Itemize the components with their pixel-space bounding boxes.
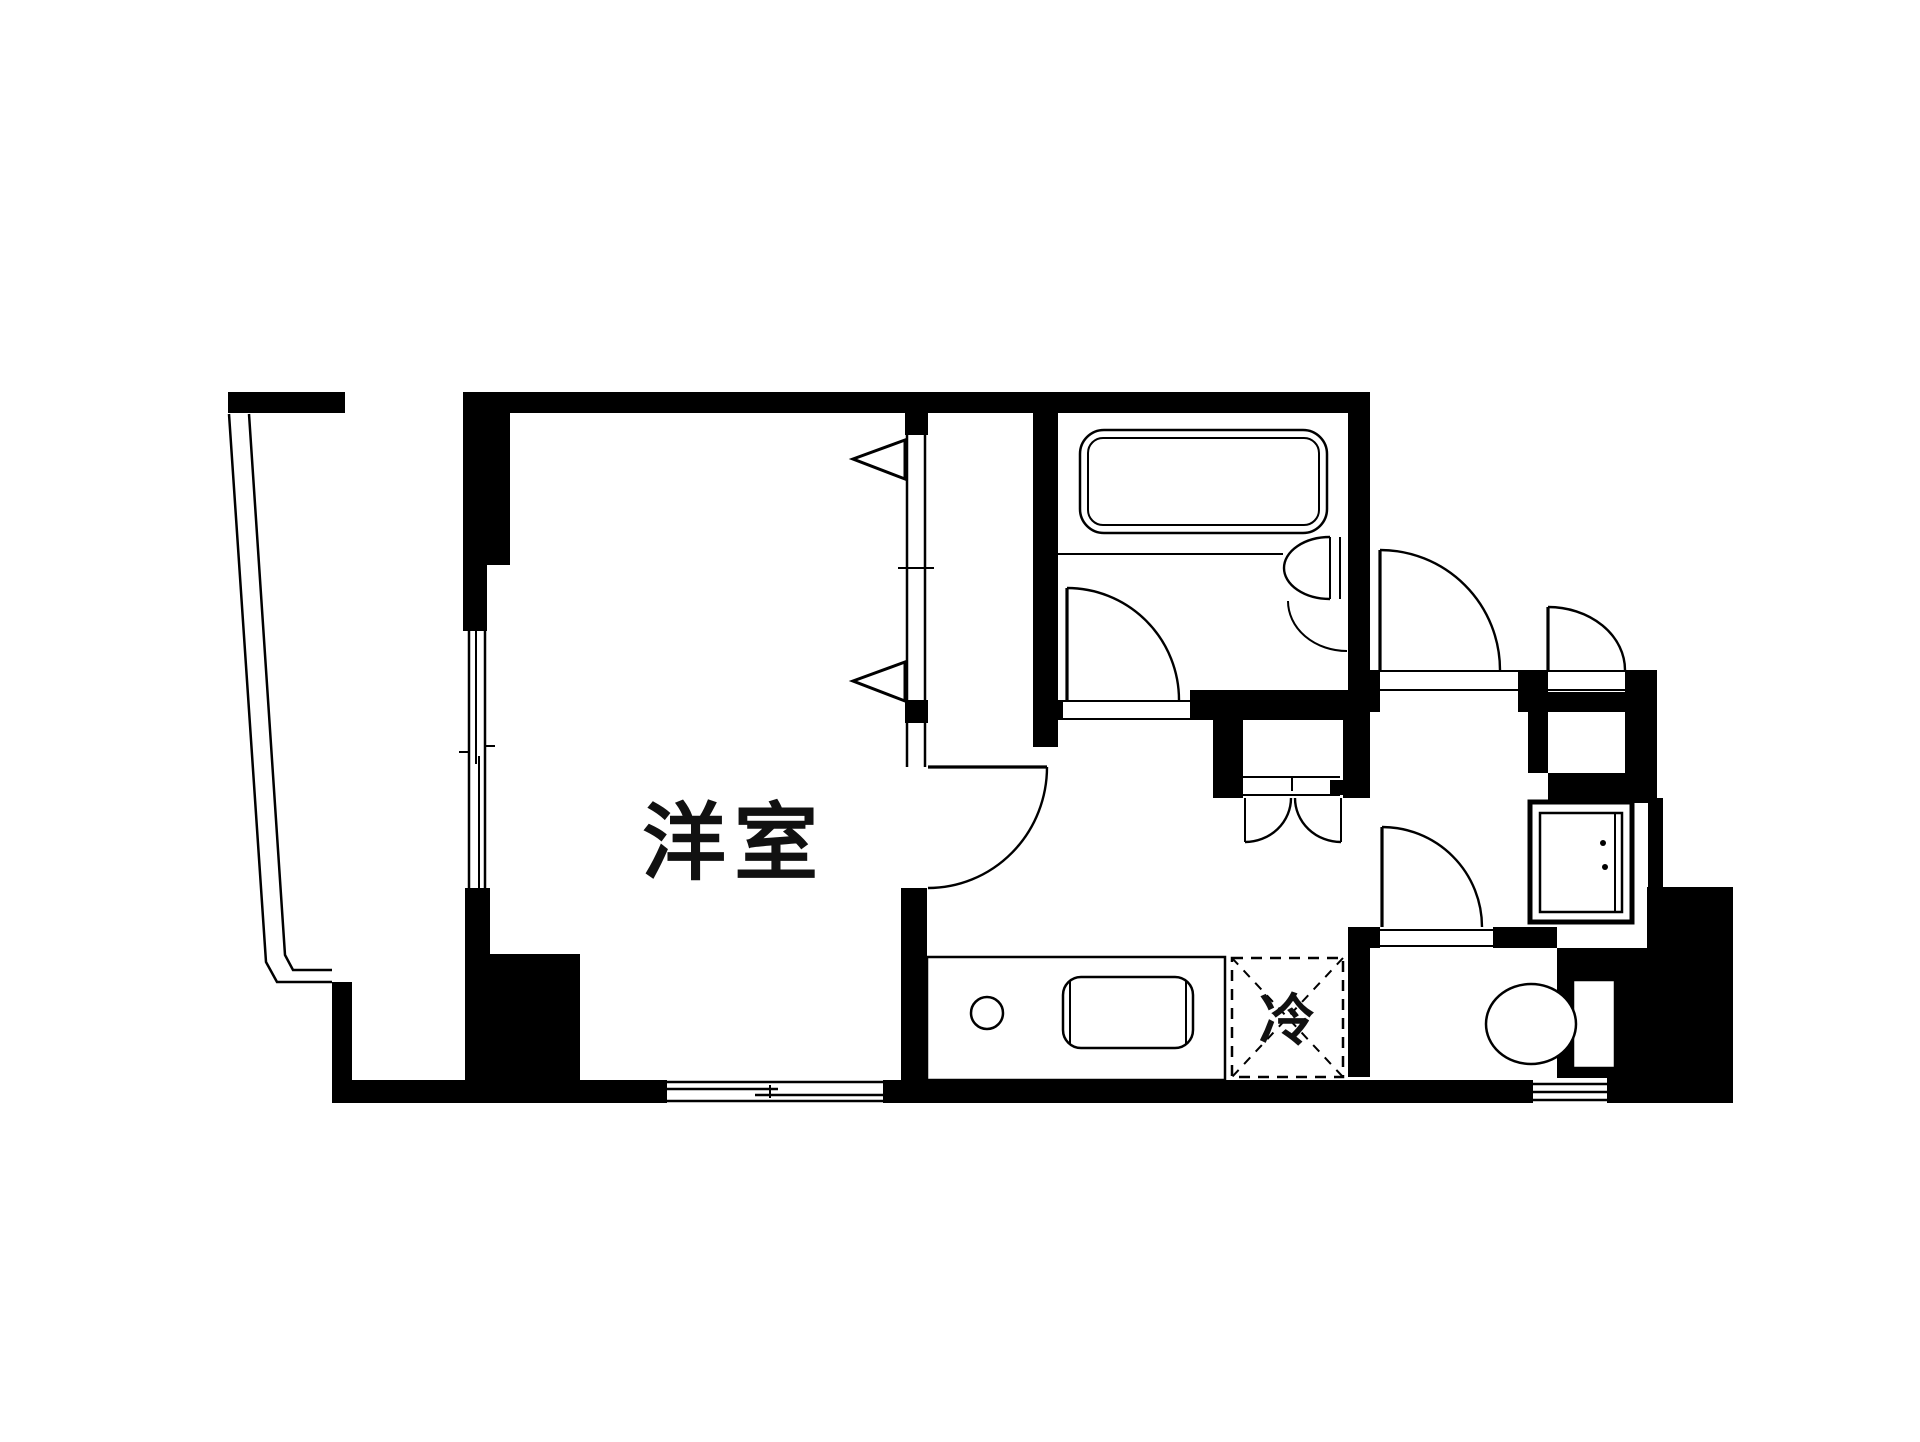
wall-right-thin [1648,798,1663,887]
wall-closet-left-bar [1213,720,1243,798]
bathtub [1080,430,1327,533]
floor-plan-svg: 冷 [0,0,1920,1442]
meter-box-door [1548,607,1625,690]
wall-neck [465,888,490,956]
wall-washroom-nub [1033,700,1063,720]
floor-plan-page: { "document": { "type": "japanese-apartm… [0,0,1920,1442]
refrigerator-space: 冷 [1232,958,1343,1077]
toilet-door [1380,827,1493,947]
wall-closet-band [1190,690,1370,720]
wall-sw-block [465,954,580,1082]
kitchen-sink [1063,977,1193,1048]
entrance [1380,550,1632,922]
slide-arrow-upper [853,440,905,479]
closet-door-left [1245,798,1291,842]
wall-meterbox-bottom [1548,773,1657,803]
bathtub-inner [1088,438,1319,525]
toilet-tank [1573,980,1615,1068]
refrigerator-label: 冷 [1259,989,1315,1054]
balcony [229,414,332,982]
wall-wc-left [1348,948,1370,1077]
wall-top-left [228,392,345,413]
washroom-door [1063,588,1190,720]
bathroom [1058,430,1347,720]
stove-burner [971,997,1003,1029]
hall-closet [1243,777,1341,842]
wall-bottom-left [332,1080,667,1103]
washbasin [1284,537,1347,651]
top-window [345,394,463,411]
wall-wc-band-left [1348,927,1380,948]
washing-machine-pan [1530,802,1632,922]
entrance-door [1380,550,1518,690]
wall-nw-narrow [463,565,487,631]
wall-entrance-left-chunk [1348,670,1380,712]
wall-nw-pillar [463,413,510,565]
wall-bath-right-foot [1330,780,1350,795]
entrance-step-grille [1533,1078,1607,1103]
windows [345,394,883,1103]
wall-partition-stub-top [905,413,928,435]
slide-arrow-lower [853,662,905,701]
wall-bath-right [1348,413,1370,795]
south-sliding-window [667,1080,883,1103]
main-room-label: 洋室 [642,794,826,892]
room-door [928,767,1047,888]
toilet-bowl [1486,984,1576,1064]
wall-room-right-lower [901,888,927,1103]
closet-door-right [1295,798,1341,842]
wall-partition-stub-mid [905,700,928,723]
wall-meterbox-top [1548,692,1632,712]
wall-right-mass-upper [1647,887,1733,948]
balcony-sliding-door [459,630,495,888]
wall-wc-band-right [1493,927,1557,948]
wall-corridor-bath [1033,413,1058,747]
kitchen: 冷 [927,957,1343,1080]
wall-entrance-mid-chunk [1518,670,1548,712]
wall-meterbox-left [1528,712,1548,773]
wall-top-main [463,392,1370,413]
